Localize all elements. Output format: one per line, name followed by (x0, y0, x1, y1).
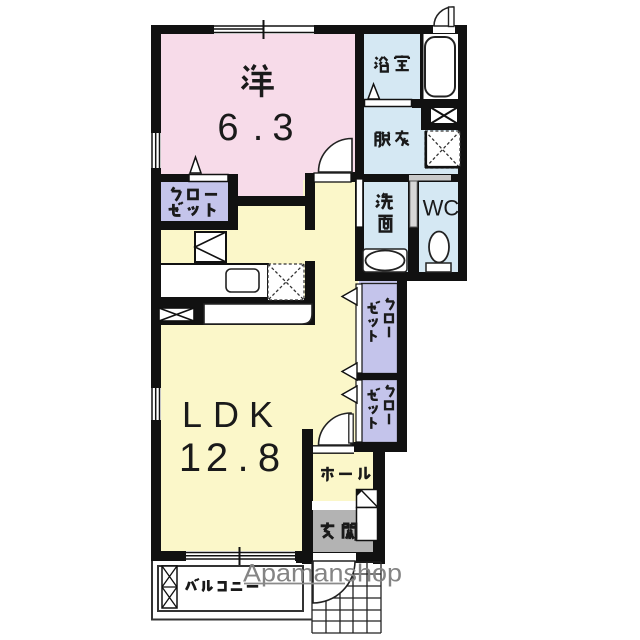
svg-text:K: K (249, 394, 273, 435)
svg-text:D: D (213, 394, 239, 435)
svg-text:3: 3 (272, 107, 293, 149)
svg-text:.: . (253, 107, 264, 149)
svg-text:L: L (182, 394, 202, 435)
svg-text:8: 8 (258, 436, 280, 480)
svg-text:6: 6 (217, 107, 238, 149)
svg-text:1: 1 (179, 436, 201, 480)
svg-text:2: 2 (206, 436, 228, 480)
svg-text:WC: WC (423, 196, 460, 221)
svg-text:.: . (237, 436, 248, 480)
